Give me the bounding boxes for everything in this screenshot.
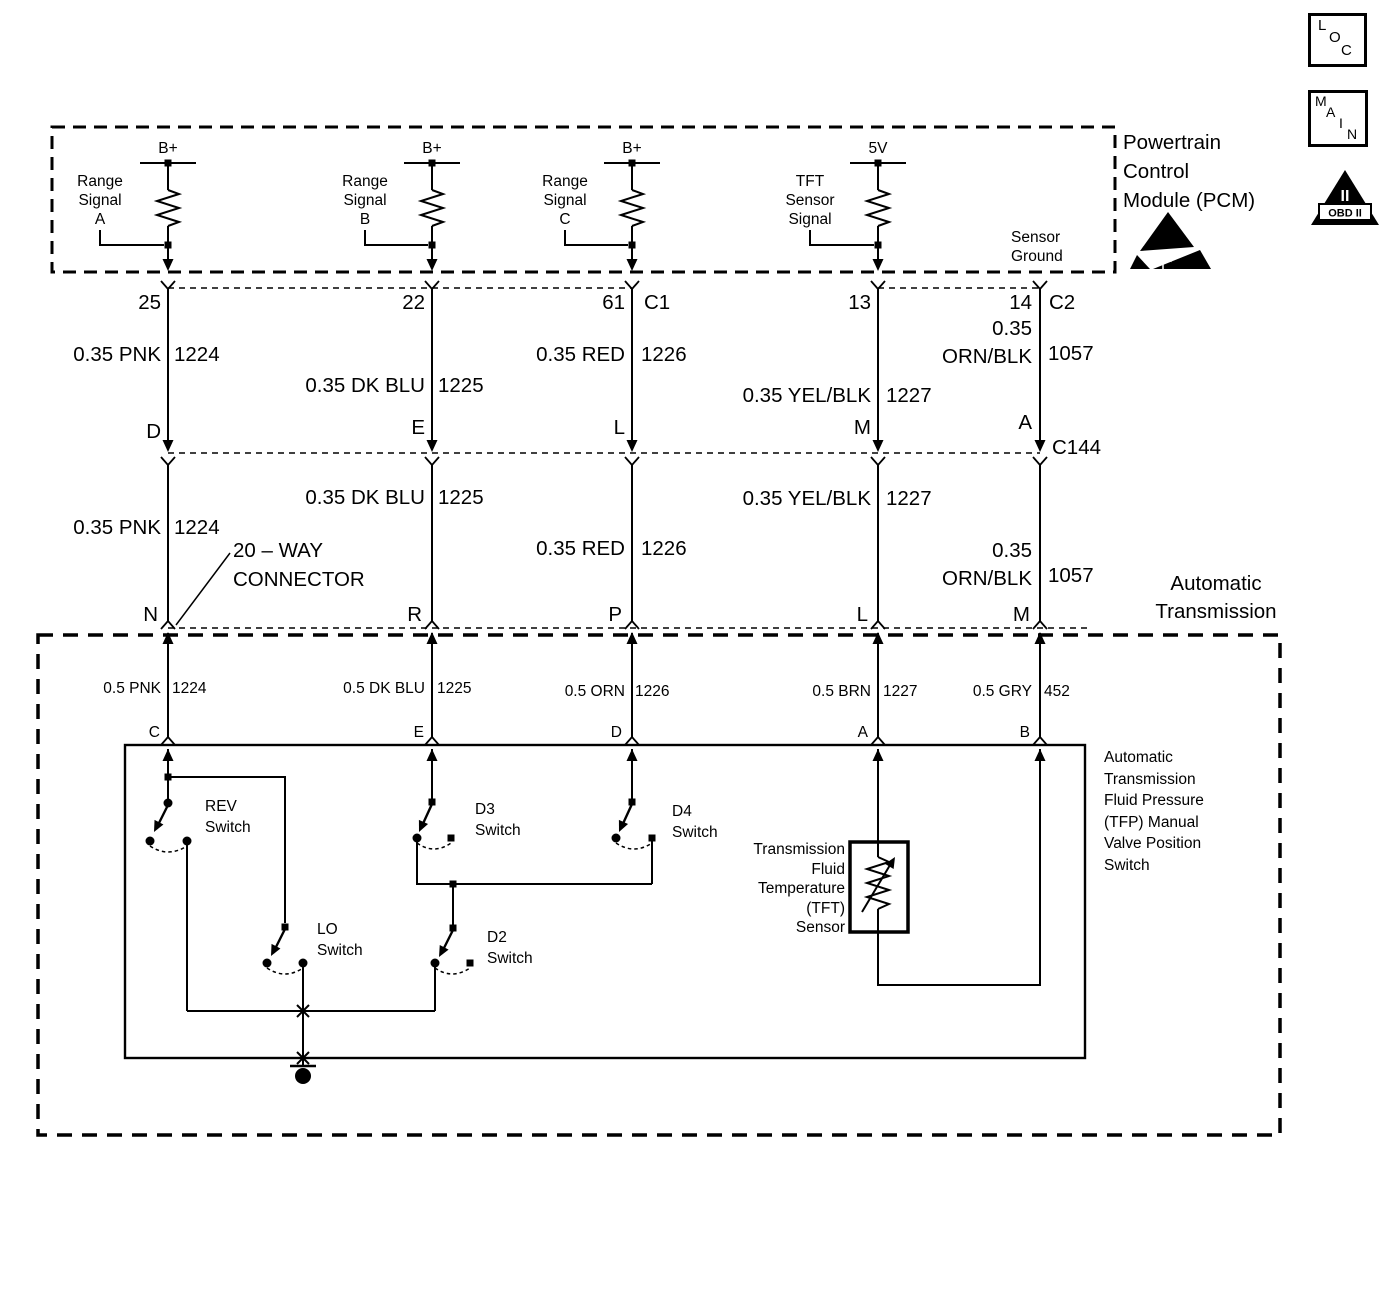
wire-color-label: 0.5 PNK [31,679,161,698]
wire-color-label: 0.5 BRN [741,682,871,701]
d2-switch-label: D2 Switch [487,928,533,969]
esd-warning-icon [1130,212,1211,269]
range-signal-a-label: Range Signal A [40,172,160,229]
pin-letter: C [100,723,160,742]
rev-switch-label: REV Switch [205,797,251,838]
obd2-numeral: II [1341,188,1350,205]
wire-color-label: 0.35 YEL/BLK [711,385,871,407]
wire-color-label: 0.35 PNK [1,344,161,366]
wire-circuit-number: 1227 [886,488,932,510]
d4-switch-label: D4 Switch [672,802,718,843]
sensor-ground-label: Sensor Ground [1011,228,1063,266]
tfp-inside-arrows [163,749,1046,761]
supply-label: B+ [602,139,662,158]
pin-letter: M [811,417,871,439]
pin-letter: B [970,723,1030,742]
wire-color-label: 0.35 PNK [1,517,161,539]
wire-color-label: 0.35 ORN/BLK [872,537,1032,593]
lo-switch [263,924,308,975]
wire-color-label: 0.35 ORN/BLK [872,315,1032,371]
wiring-diagram: II OBD II L O C M A I N Powertrain Contr… [0,0,1383,1304]
connector-name-c2: C2 [1049,292,1075,314]
loc-icon: L O C [1308,13,1367,67]
wire-color-label: 0.35 DK BLU [265,487,425,509]
ground-icon [290,1066,316,1084]
connector-name-c1: C1 [644,292,670,314]
wire-circuit-number: 1226 [641,538,687,560]
obd2-icon: II OBD II [1311,170,1379,225]
pin-number: 22 [365,292,425,314]
wire-color-label: 0.35 RED [465,344,625,366]
pin-letter: M [970,604,1030,626]
pin-letter: D [562,723,622,742]
supply-label: B+ [138,139,198,158]
loc-letter: O [1329,30,1341,45]
pin-letter: N [98,604,158,626]
pin-letter: L [808,604,868,626]
pin-letter: A [808,723,868,742]
resistor-icon [157,190,179,226]
supply-label: 5V [848,139,908,158]
wire-circuit-number: 1224 [174,344,220,366]
tft-sensor [850,749,1040,985]
pin-letter: E [365,417,425,439]
wire-circuit-number: 1226 [635,682,669,701]
pin-number: 13 [811,292,871,314]
pin-letter: E [364,723,424,742]
pin-letter: P [562,604,622,626]
main-letter: M [1315,94,1327,109]
wire-circuit-number: 1057 [1048,565,1094,587]
pin-number: 14 [972,292,1032,314]
d3-switch [413,799,455,850]
range-signal-c-label: Range Signal C [505,172,625,229]
range-signal-b-label: Range Signal B [305,172,425,229]
wire-color-label: 0.35 RED [465,538,625,560]
pin-letter: L [565,417,625,439]
wire-circuit-number: 1225 [437,679,471,698]
tft-signal-label: TFT Sensor Signal [750,172,870,229]
loc-letter: L [1318,18,1326,33]
wire-circuit-number: 1057 [1048,343,1094,365]
wire-circuit-number: 1225 [438,375,484,397]
20way-pointer-line [176,553,230,625]
connector-name-c144: C144 [1052,437,1101,459]
wire-circuit-number: 1225 [438,487,484,509]
obd2-label: OBD II [1328,208,1362,220]
resistor-icon [867,190,889,226]
female-connector-icons-c144 [161,457,1047,465]
tfp-switch-description: Automatic Transmission Fluid Pressure (T… [1104,747,1204,876]
pin-letter: A [972,412,1032,434]
d3-switch-label: D3 Switch [475,800,521,841]
wire-circuit-number: 1226 [641,344,687,366]
wire-color-label: 0.5 GRY [902,682,1032,701]
wire-color-label: 0.5 ORN [495,682,625,701]
20way-connector-label: 20 – WAY CONNECTOR [233,536,365,594]
wire-color-label: 0.5 DK BLU [295,679,425,698]
wire-color-label: 0.35 DK BLU [265,375,425,397]
tft-sensor-label: Transmission Fluid Temperature (TFT) Sen… [645,840,845,938]
pcm-title: Powertrain Control Module (PCM) [1123,128,1255,215]
pin-number: 25 [101,292,161,314]
pin-letter: R [362,604,422,626]
main-letter: I [1339,116,1343,131]
main-icon: M A I N [1308,90,1368,147]
pin-letter: D [101,421,161,443]
lo-switch-label: LO Switch [317,920,363,961]
supply-label: B+ [402,139,462,158]
transmission-title: Automatic Transmission [1116,570,1316,626]
main-letter: N [1347,127,1357,142]
variable-resistor-icon [867,857,889,909]
pin-number: 61 [565,292,625,314]
wire-circuit-number: 1227 [886,385,932,407]
main-letter: A [1326,105,1335,120]
wire-circuit-number: 452 [1044,682,1070,701]
c144-pin-arrows [163,440,1046,452]
wire-circuit-number: 1224 [172,679,206,698]
loc-letter: C [1341,43,1352,58]
wire-circuit-number: 1224 [174,517,220,539]
wire-color-label: 0.35 YEL/BLK [711,488,871,510]
